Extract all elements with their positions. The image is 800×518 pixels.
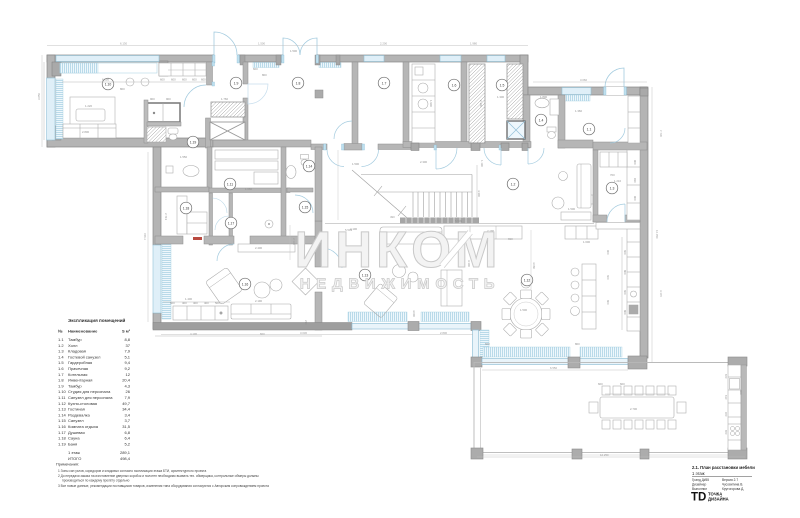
svg-text:3.170: 3.170 bbox=[659, 290, 663, 297]
svg-text:2.190: 2.190 bbox=[255, 299, 262, 303]
svg-text:1.900: 1.900 bbox=[429, 100, 433, 107]
svg-text:900: 900 bbox=[166, 97, 171, 101]
svg-text:1.11: 1.11 bbox=[227, 182, 233, 186]
svg-text:1.3: 1.3 bbox=[610, 186, 615, 190]
svg-text:1 Зоны сан узлов, коридоров и: 1 Зоны сан узлов, коридоров и кладовых с… bbox=[58, 469, 206, 473]
svg-text:1.10: 1.10 bbox=[105, 82, 112, 86]
svg-text:210: 210 bbox=[304, 320, 308, 325]
svg-text:1.2: 1.2 bbox=[58, 343, 64, 348]
svg-text:600: 600 bbox=[192, 78, 197, 82]
svg-text:1.18: 1.18 bbox=[183, 206, 190, 210]
svg-text:6.550: 6.550 bbox=[550, 366, 557, 370]
svg-text:производиться по каждому пролё: производиться по каждому пролёту отдельн… bbox=[62, 479, 130, 483]
svg-text:Котельная: Котельная bbox=[68, 372, 87, 377]
svg-text:1.500: 1.500 bbox=[520, 308, 527, 312]
svg-text:1.10: 1.10 bbox=[58, 389, 67, 394]
svg-text:1.500: 1.500 bbox=[352, 162, 359, 166]
svg-text:2.130: 2.130 bbox=[479, 100, 483, 107]
svg-text:930: 930 bbox=[633, 178, 637, 183]
svg-text:7.910: 7.910 bbox=[143, 233, 147, 240]
svg-text:1.13: 1.13 bbox=[58, 407, 67, 412]
svg-text:3,7: 3,7 bbox=[124, 418, 130, 423]
svg-text:1.19: 1.19 bbox=[190, 140, 197, 144]
svg-text:Инвентарная: Инвентарная bbox=[68, 378, 92, 383]
svg-text:Тамбур: Тамбур bbox=[68, 337, 82, 342]
svg-text:1.19: 1.19 bbox=[58, 441, 67, 446]
svg-text:Гостиная: Гостиная bbox=[68, 407, 85, 412]
svg-text:Версия 2.7: Версия 2.7 bbox=[722, 478, 738, 482]
svg-text:4.080: 4.080 bbox=[532, 262, 536, 269]
svg-text:1.360: 1.360 bbox=[575, 109, 582, 113]
svg-text:12.050: 12.050 bbox=[655, 230, 659, 239]
svg-text:1.8: 1.8 bbox=[58, 378, 64, 383]
svg-text:630: 630 bbox=[724, 395, 728, 400]
svg-text:1.1: 1.1 bbox=[587, 127, 592, 131]
svg-text:2.700: 2.700 bbox=[630, 407, 637, 411]
svg-text:490: 490 bbox=[390, 215, 395, 219]
svg-text:1.16: 1.16 bbox=[58, 424, 67, 429]
svg-text:ИНКОМ: ИНКОМ bbox=[295, 221, 502, 278]
svg-text:900: 900 bbox=[150, 97, 155, 101]
svg-text:500: 500 bbox=[215, 301, 220, 305]
svg-text:1.15: 1.15 bbox=[58, 418, 67, 423]
svg-text:Санузел для персонала: Санузел для персонала bbox=[68, 395, 113, 400]
svg-text:1.6: 1.6 bbox=[58, 366, 64, 371]
svg-text:600: 600 bbox=[182, 78, 187, 82]
svg-text:600: 600 bbox=[724, 374, 728, 379]
svg-text:1.5: 1.5 bbox=[500, 83, 505, 87]
svg-text:НЕДВИЖИМОСТЬ: НЕДВИЖИМОСТЬ bbox=[300, 276, 500, 293]
svg-text:Выполнил: Выполнил bbox=[692, 487, 707, 491]
svg-text:1.11: 1.11 bbox=[58, 395, 66, 400]
svg-text:S м²: S м² bbox=[122, 329, 131, 334]
svg-text:Чусовитина В.: Чусовитина В. bbox=[722, 483, 743, 487]
svg-text:37: 37 bbox=[126, 343, 131, 348]
svg-text:Кухня-столовая: Кухня-столовая bbox=[68, 401, 97, 406]
svg-text:34,4: 34,4 bbox=[122, 407, 131, 412]
svg-text:ДИЗАЙНА: ДИЗАЙНА bbox=[708, 497, 729, 502]
svg-text:4,3: 4,3 bbox=[124, 383, 130, 388]
svg-text:1.15: 1.15 bbox=[302, 205, 309, 209]
svg-text:1.12: 1.12 bbox=[58, 401, 67, 406]
svg-text:1.6: 1.6 bbox=[452, 83, 457, 87]
svg-text:600: 600 bbox=[598, 382, 603, 386]
svg-text:1.8: 1.8 bbox=[296, 81, 301, 85]
svg-text:800: 800 bbox=[606, 300, 610, 305]
svg-text:600: 600 bbox=[620, 382, 625, 386]
svg-text:20,4: 20,4 bbox=[122, 378, 131, 383]
svg-text:1.7: 1.7 bbox=[382, 81, 387, 85]
svg-text:2.200: 2.200 bbox=[380, 42, 387, 46]
svg-text:600: 600 bbox=[485, 342, 490, 346]
svg-text:1.400: 1.400 bbox=[185, 297, 192, 301]
svg-text:400: 400 bbox=[182, 301, 187, 305]
svg-text:2.800: 2.800 bbox=[440, 331, 447, 335]
svg-text:1.1: 1.1 bbox=[58, 337, 64, 342]
svg-text:Примечания:: Примечания: bbox=[56, 463, 79, 467]
svg-text:1.16: 1.16 bbox=[242, 282, 249, 286]
svg-text:Гостевой санузел: Гостевой санузел bbox=[68, 354, 101, 359]
svg-text:1.9: 1.9 bbox=[58, 383, 64, 388]
svg-text:1.12: 1.12 bbox=[524, 278, 531, 282]
svg-text:3 Все новые данные, рекоменда: 3 Все новые данные, рекомендации поставщ… bbox=[58, 484, 269, 488]
svg-text:1.17: 1.17 bbox=[228, 221, 235, 225]
svg-text:Гранд Д#55: Гранд Д#55 bbox=[692, 478, 709, 482]
svg-text:800: 800 bbox=[623, 310, 627, 315]
svg-text:1.190: 1.190 bbox=[480, 160, 484, 167]
svg-text:800: 800 bbox=[262, 73, 267, 77]
svg-text:2.400: 2.400 bbox=[255, 246, 262, 250]
svg-text:900: 900 bbox=[606, 250, 610, 255]
svg-text:2.300: 2.300 bbox=[420, 160, 427, 164]
svg-text:4.300: 4.300 bbox=[477, 190, 481, 197]
svg-text:700: 700 bbox=[610, 173, 615, 177]
svg-text:289,1: 289,1 bbox=[120, 450, 131, 455]
svg-text:1 этаж: 1 этаж bbox=[692, 471, 705, 476]
svg-text:1.9: 1.9 bbox=[234, 81, 239, 85]
svg-text:1.14: 1.14 bbox=[306, 164, 313, 168]
svg-text:3.060: 3.060 bbox=[580, 78, 587, 82]
svg-text:600: 600 bbox=[253, 67, 258, 71]
svg-text:1 этаж: 1 этаж bbox=[68, 450, 80, 455]
svg-text:Гардеробная: Гардеробная bbox=[68, 360, 92, 365]
svg-text:Санузел: Санузел bbox=[68, 418, 84, 423]
svg-text:Крутогорова Д.: Крутогорова Д. bbox=[722, 487, 744, 491]
svg-text:Студия для персонала: Студия для персонала bbox=[68, 389, 111, 394]
svg-text:600: 600 bbox=[201, 78, 206, 82]
svg-text:1.210: 1.210 bbox=[614, 179, 621, 183]
svg-text:Сауна: Сауна bbox=[68, 436, 80, 441]
svg-text:690: 690 bbox=[508, 237, 513, 241]
svg-text:1.4: 1.4 bbox=[539, 118, 544, 122]
svg-text:1.500: 1.500 bbox=[290, 49, 297, 53]
svg-text:Комната отдыха: Комната отдыха bbox=[68, 424, 99, 429]
svg-text:400: 400 bbox=[193, 301, 198, 305]
svg-text:600: 600 bbox=[623, 250, 627, 255]
svg-text:498,4: 498,4 bbox=[120, 456, 131, 461]
svg-text:Баня: Баня bbox=[68, 441, 77, 446]
svg-text:800: 800 bbox=[575, 342, 580, 346]
svg-text:900: 900 bbox=[724, 412, 728, 417]
svg-text:Экспликация помещений: Экспликация помещений bbox=[68, 317, 126, 323]
svg-text:900: 900 bbox=[633, 160, 637, 165]
svg-text:3.030: 3.030 bbox=[300, 331, 307, 335]
svg-text:1.7: 1.7 bbox=[58, 372, 64, 377]
svg-text:Прачечная: Прачечная bbox=[68, 366, 88, 371]
svg-text:7,9: 7,9 bbox=[124, 395, 130, 400]
svg-text:8,8: 8,8 bbox=[124, 337, 130, 342]
svg-text:1.4: 1.4 bbox=[58, 354, 64, 359]
svg-text:1.600: 1.600 bbox=[583, 240, 590, 244]
svg-text:ТD: ТD bbox=[691, 492, 706, 504]
svg-text:800: 800 bbox=[724, 430, 728, 435]
svg-text:26: 26 bbox=[126, 389, 131, 394]
svg-text:1.5: 1.5 bbox=[58, 360, 64, 365]
svg-text:1.300: 1.300 bbox=[497, 95, 504, 99]
svg-text:2.1. План расстановки мебели: 2.1. План расстановки мебели bbox=[692, 465, 755, 470]
svg-text:Холл: Холл bbox=[68, 343, 78, 348]
svg-text:6.050: 6.050 bbox=[102, 78, 109, 82]
svg-text:600: 600 bbox=[171, 78, 176, 82]
svg-text:4.000: 4.000 bbox=[412, 310, 416, 317]
svg-text:4.100: 4.100 bbox=[190, 332, 197, 336]
svg-text:1.18: 1.18 bbox=[58, 436, 67, 441]
svg-text:12: 12 bbox=[126, 372, 131, 377]
svg-text:600: 600 bbox=[170, 301, 175, 305]
svg-text:Душевая: Душевая bbox=[68, 430, 85, 435]
svg-text:1.550: 1.550 bbox=[180, 155, 187, 159]
svg-text:9,4: 9,4 bbox=[124, 360, 130, 365]
svg-text:2.713: 2.713 bbox=[164, 213, 168, 220]
svg-text:9,2: 9,2 bbox=[124, 366, 130, 371]
svg-text:1.800: 1.800 bbox=[540, 95, 547, 99]
svg-text:800: 800 bbox=[623, 270, 627, 275]
svg-text:2.800: 2.800 bbox=[82, 130, 89, 134]
svg-text:Тамбур: Тамбур bbox=[68, 383, 82, 388]
svg-text:600: 600 bbox=[606, 275, 610, 280]
svg-text:600: 600 bbox=[623, 290, 627, 295]
svg-text:7,9: 7,9 bbox=[124, 349, 130, 354]
svg-text:7.730: 7.730 bbox=[659, 130, 663, 137]
svg-text:1.3: 1.3 bbox=[58, 349, 64, 354]
svg-text:2 До передачи заказа на изгот: 2 До передачи заказа на изготовление две… bbox=[58, 474, 259, 478]
svg-text:3,4: 3,4 bbox=[124, 412, 130, 417]
svg-text:1.500: 1.500 bbox=[258, 42, 265, 46]
svg-text:ИТОГО: ИТОГО bbox=[68, 456, 81, 461]
svg-text:49,7: 49,7 bbox=[122, 401, 131, 406]
svg-text:1.660: 1.660 bbox=[245, 187, 252, 191]
svg-text:№: № bbox=[58, 329, 63, 334]
svg-text:Раздевалка: Раздевалка bbox=[68, 412, 90, 417]
svg-text:600: 600 bbox=[160, 78, 165, 82]
svg-text:31,5: 31,5 bbox=[122, 424, 131, 429]
svg-text:5,1: 5,1 bbox=[124, 354, 130, 359]
svg-text:Кладовая: Кладовая bbox=[68, 349, 86, 354]
svg-text:6,4: 6,4 bbox=[124, 436, 130, 441]
svg-text:1.220: 1.220 bbox=[85, 104, 92, 108]
svg-text:6,8: 6,8 bbox=[124, 430, 130, 435]
svg-text:1.14: 1.14 bbox=[58, 412, 67, 417]
svg-text:1.2: 1.2 bbox=[511, 182, 516, 186]
svg-text:Наименование: Наименование bbox=[68, 329, 98, 334]
svg-text:1.760: 1.760 bbox=[221, 97, 228, 101]
svg-text:5,2: 5,2 bbox=[124, 441, 130, 446]
svg-text:6.130: 6.130 bbox=[120, 42, 127, 46]
svg-text:600: 600 bbox=[739, 390, 743, 395]
svg-text:12.250: 12.250 bbox=[600, 453, 609, 457]
svg-text:1.980: 1.980 bbox=[470, 42, 477, 46]
svg-text:1.17: 1.17 bbox=[58, 430, 67, 435]
svg-text:Дизайнер: Дизайнер bbox=[692, 483, 706, 487]
svg-text:3.850: 3.850 bbox=[37, 93, 41, 100]
svg-text:900: 900 bbox=[633, 196, 637, 201]
svg-text:1.500: 1.500 bbox=[568, 207, 575, 211]
svg-text:600: 600 bbox=[260, 332, 265, 336]
svg-text:800: 800 bbox=[120, 87, 125, 91]
svg-text:400: 400 bbox=[204, 301, 209, 305]
